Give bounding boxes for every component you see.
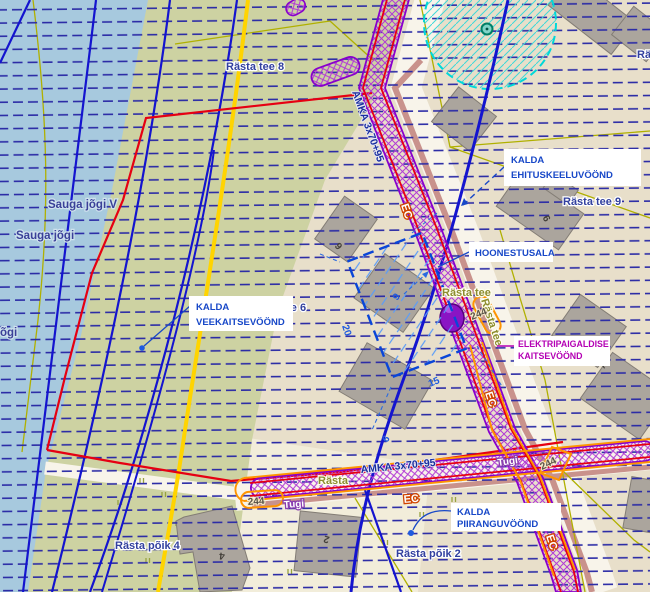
- label-sauga-jogi: Sauga jõgi: [16, 230, 74, 242]
- label-rasta-tee-partial: Rä: [637, 49, 650, 61]
- annotation-ehituskeeluvoond: KALDA EHITUSKEELUVÖÖND: [504, 149, 641, 186]
- annotation-hoonestusala: HOONESTUSALA: [469, 242, 555, 262]
- label-rasta-tee-8: Rästa tee 8: [226, 61, 284, 73]
- annotation-text: HOONESTUSALA: [475, 248, 555, 259]
- label-rasta-poik-2: Rästa põik 2: [396, 548, 461, 560]
- label-pole-244-1: 244: [247, 496, 265, 508]
- annotation-text: VEEKAITSEVÖÖND: [196, 317, 285, 328]
- leader-dot: [408, 530, 414, 536]
- planning-map: Rästa tee 8 Rästa tee 9 Rästa tee 6 Räst…: [0, 0, 650, 592]
- annotation-text: ELEKTRIPAIGALDISE: [518, 339, 609, 349]
- label-rasta-partial: Rästa: [318, 475, 349, 487]
- annotation-text: KAITSEVÖÖND: [518, 351, 583, 361]
- label-rasta-tee-road: Rästa tee: [442, 287, 491, 299]
- annotation-text: KALDA: [457, 507, 490, 518]
- annotation-piiranguvoond: KALDA PIIRANGUVÖÖND: [451, 503, 561, 531]
- label-sauga-jogi-v: Sauga jõgi V: [48, 199, 117, 211]
- leader-dot: [139, 345, 145, 351]
- annotation-veekaitsevoond: KALDA VEEKAITSEVÖÖND: [189, 296, 293, 331]
- annotation-elektripaigaldise-kaitsevoond: ELEKTRIPAIGALDISE KAITSEVÖÖND: [514, 336, 610, 366]
- annotation-text: EHITUSKEELUVÖÖND: [511, 170, 613, 181]
- label-rasta-tee-9: Rästa tee 9: [563, 196, 621, 208]
- annotation-text: KALDA: [511, 155, 544, 166]
- label-jogi-partial: õgi: [0, 327, 17, 339]
- label-tugi-1: Tugi: [283, 499, 304, 511]
- label-rasta-poik-4: Rästa põik 4: [115, 540, 181, 552]
- annotation-text: PIIRANGUVÖÖND: [457, 519, 538, 530]
- label-ec-3: EC: [403, 493, 419, 506]
- map-canvas[interactable]: Rästa tee 8 Rästa tee 9 Rästa tee 6 Räst…: [0, 0, 650, 592]
- annotation-text: KALDA: [196, 302, 229, 313]
